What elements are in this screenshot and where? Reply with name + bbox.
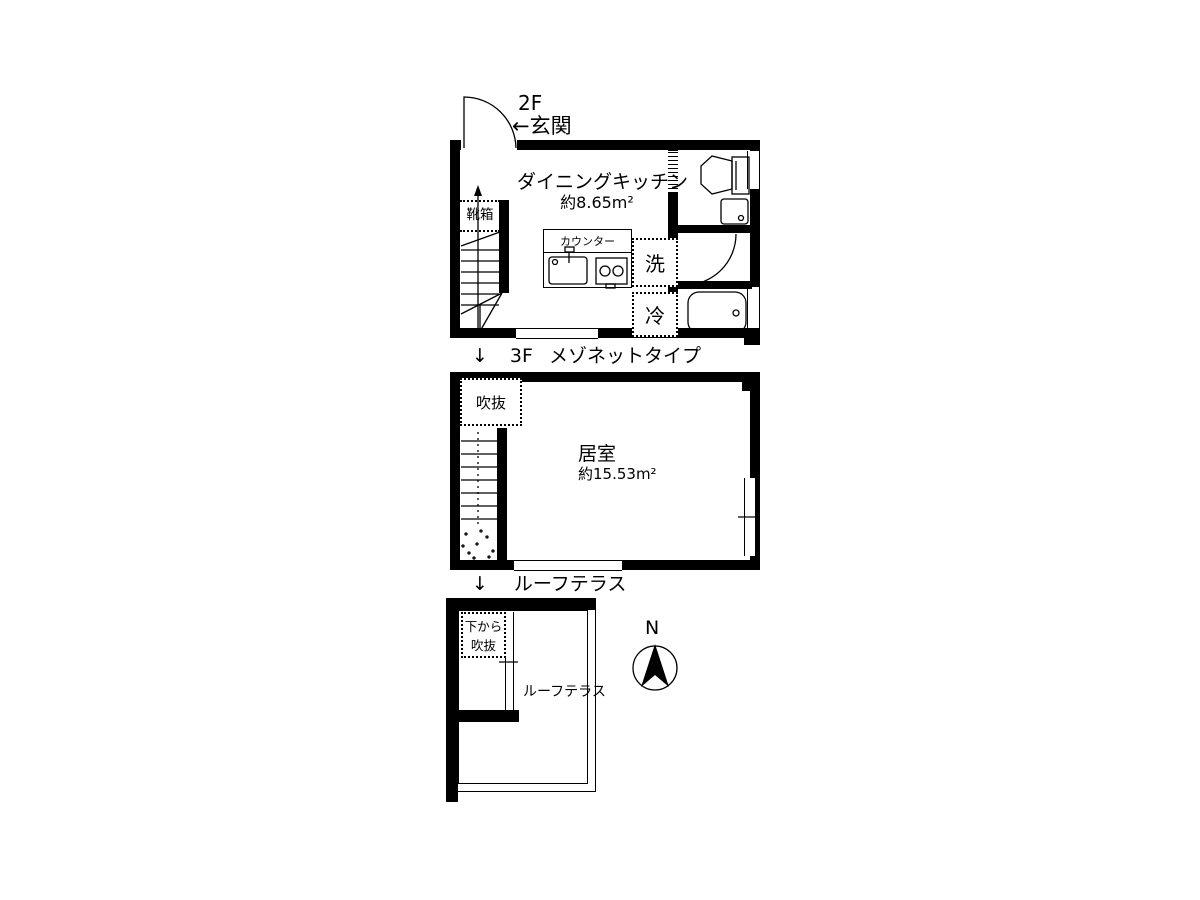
dining-kitchen-label: ダイニングキッチン xyxy=(517,172,677,194)
roof-top-wall xyxy=(446,598,596,610)
floor2-corner-stub xyxy=(744,338,760,345)
roof-interior-wall xyxy=(456,710,519,722)
kitchen-bottom-window xyxy=(516,328,598,339)
fridge-space: 冷 xyxy=(632,292,678,337)
compass-icon xyxy=(633,644,677,690)
roof-header: ↓ ルーフテラス xyxy=(472,574,626,596)
counter-label: カウンター xyxy=(560,233,615,249)
kitchen-counter: カウンター xyxy=(543,229,632,288)
floor2-stair-wall xyxy=(499,200,509,293)
fridge-label: 冷 xyxy=(645,300,665,329)
roof-void-label-line2: 吹抜 xyxy=(471,635,496,654)
floor3-corner-block xyxy=(742,372,760,391)
floor3-void-label: 吹抜 xyxy=(476,392,506,413)
washer-label: 洗 xyxy=(645,248,665,277)
floorplan-canvas: 2F ←玄関 靴箱 ダイニングキッチン 約8.65m² カウンター 洗 冷 ↓ … xyxy=(0,0,1200,900)
roof-divider-wall xyxy=(505,612,514,714)
living-room-label: 居室 xyxy=(578,444,657,466)
roof-void-label-line1: 下から xyxy=(465,616,503,635)
entrance-label: ←玄関 xyxy=(512,114,572,138)
washroom-bath-wall xyxy=(677,281,752,289)
bath-window xyxy=(747,287,760,328)
washer-space: 洗 xyxy=(632,238,678,287)
toilet-window xyxy=(747,151,760,189)
floor3-stair-wall xyxy=(497,428,507,564)
compass-north-label: N xyxy=(645,618,659,640)
floor3-right-window xyxy=(744,478,756,556)
terrace-label: ルーフテラス xyxy=(523,684,606,700)
floor3-void-box: 吹抜 xyxy=(460,378,522,426)
floor3-label: 3F xyxy=(510,346,533,368)
living-room-area: 約15.53m² xyxy=(578,466,657,483)
shoebox: 靴箱 xyxy=(460,200,500,232)
dining-kitchen-label-block: ダイニングキッチン 約8.65m² xyxy=(517,172,677,212)
roof-left-wall xyxy=(446,598,458,802)
floor3-bottom-window xyxy=(514,560,622,571)
down-arrow-icon: ↓ xyxy=(472,346,488,368)
floor2-label: 2F xyxy=(518,92,542,115)
entrance-door-opening xyxy=(461,138,517,151)
toilet-washroom-wall xyxy=(677,225,752,233)
counter-label-band: カウンター xyxy=(544,230,631,253)
roof-void-box: 下から 吹抜 xyxy=(461,612,506,658)
living-room-label-block: 居室 約15.53m² xyxy=(578,444,657,483)
dining-kitchen-area: 約8.65m² xyxy=(517,194,677,212)
floor3-header: ↓ 3F メゾネットタイプ xyxy=(472,346,701,368)
shoebox-label: 靴箱 xyxy=(467,208,494,224)
floor3-type-label: メゾネットタイプ xyxy=(549,346,701,368)
roof-section-label: ルーフテラス xyxy=(514,574,626,596)
down-arrow-icon: ↓ xyxy=(472,574,488,596)
